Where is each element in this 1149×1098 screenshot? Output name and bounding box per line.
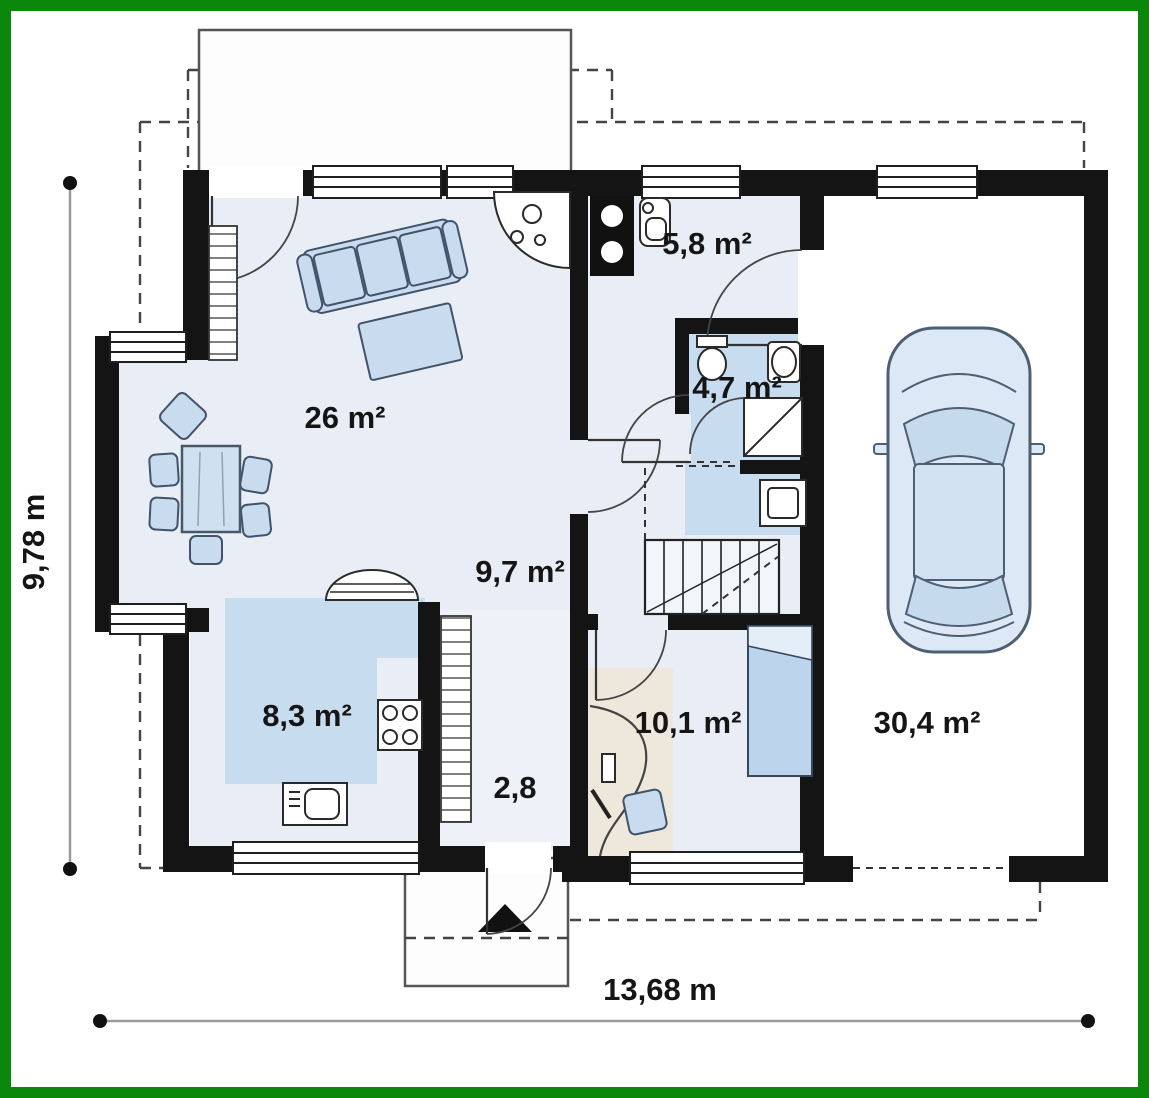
dining-chair	[190, 536, 222, 564]
room-label-utility: 5,8 m²	[662, 226, 752, 261]
window	[313, 166, 441, 198]
dining-chair	[149, 453, 179, 487]
tall-cabinet	[441, 616, 471, 822]
window	[110, 332, 186, 362]
room-label-garage: 30,4 m²	[874, 705, 981, 740]
window	[110, 604, 186, 634]
dimension-width: 13,68 m	[93, 972, 1095, 1028]
dining-chair	[239, 456, 272, 494]
room-label-kitchen: 8,3 m²	[262, 698, 352, 733]
dimension-label-width: 13,68 m	[603, 972, 717, 1007]
dimension-height: 9,78 m	[16, 176, 77, 876]
stove	[378, 700, 422, 750]
dimension-label-height: 9,78 m	[16, 494, 51, 591]
dining-chair	[240, 503, 271, 538]
window	[642, 166, 740, 198]
room-label-bathroom: 4,7 m²	[692, 370, 782, 405]
washing-machine	[760, 480, 806, 526]
window	[233, 842, 419, 874]
dining-chair	[149, 497, 179, 530]
car-top-view	[874, 328, 1044, 652]
window	[877, 166, 977, 198]
garage-door-opening	[853, 852, 1009, 884]
kitchen-sink	[283, 783, 347, 825]
desk-chair	[622, 788, 667, 835]
terrace	[199, 30, 571, 172]
room-label-hall: 9,7 m²	[475, 554, 565, 589]
floor-plan-page: 26 m² 5,8 m² 4,7 m² 9,7 m² 8,3 m² 2,8 10…	[0, 0, 1149, 1098]
staircase	[645, 540, 779, 614]
room-label-bedroom: 10,1 m²	[635, 705, 742, 740]
bookshelf	[209, 226, 237, 360]
laundry-unit	[590, 196, 634, 276]
bed	[748, 626, 812, 776]
room-label-living: 26 m²	[305, 400, 386, 435]
room-label-corridor: 2,8	[493, 770, 536, 805]
dining-table	[182, 446, 240, 532]
floor-plan-canvas: 26 m² 5,8 m² 4,7 m² 9,7 m² 8,3 m² 2,8 10…	[0, 0, 1149, 1098]
window	[630, 852, 804, 884]
